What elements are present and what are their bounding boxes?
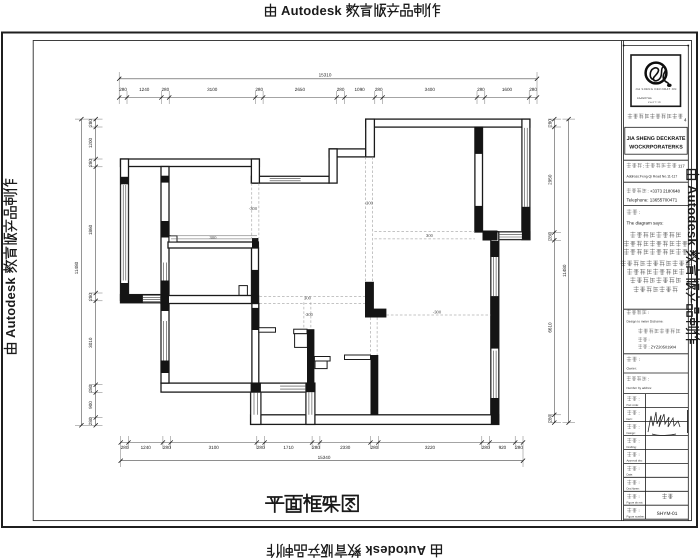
svg-text:920: 920 (499, 445, 507, 450)
svg-text:280: 280 (529, 87, 537, 92)
svg-text:Number by addres:: Number by addres: (627, 386, 653, 390)
svg-text::: : (639, 466, 640, 471)
svg-text:280: 280 (161, 87, 169, 92)
svg-text:300: 300 (304, 296, 312, 301)
svg-text::: : (639, 357, 640, 362)
svg-text::: : (648, 310, 649, 315)
svg-text:-300: -300 (305, 312, 314, 317)
svg-text:117: 117 (678, 163, 685, 168)
svg-text::: : (643, 163, 644, 168)
svg-text:280: 280 (121, 445, 129, 450)
svg-text:Design:: Design: (627, 432, 636, 435)
svg-text::: : (639, 210, 640, 215)
svg-text::: : (639, 480, 640, 485)
svg-text:280: 280 (515, 445, 523, 450)
svg-text:300: 300 (426, 233, 434, 238)
svg-text:1600: 1600 (502, 87, 513, 92)
svg-text:Figure do not:: Figure do not: (627, 502, 644, 505)
svg-text:280: 280 (257, 445, 265, 450)
svg-text:15340: 15340 (318, 455, 331, 460)
svg-text::: : (649, 337, 650, 342)
svg-text:The diagram says:: The diagram says: (627, 220, 664, 225)
svg-text:280: 280 (312, 445, 320, 450)
svg-text:Autodesk: Autodesk (365, 543, 426, 558)
svg-text:Autodesk: Autodesk (3, 277, 18, 338)
svg-text:-300: -300 (249, 206, 258, 211)
svg-text:Autodesk: Autodesk (281, 3, 342, 18)
svg-text:280: 280 (548, 414, 553, 422)
svg-text:3220: 3220 (425, 445, 436, 450)
svg-text:Owner:: Owner: (627, 367, 637, 371)
svg-text:Part code:: Part code: (627, 404, 640, 407)
svg-text:-300: -300 (433, 310, 442, 315)
svg-text:280: 280 (119, 87, 127, 92)
svg-text::: : (648, 376, 649, 381)
svg-text:280: 280 (548, 119, 553, 127)
svg-text:300: 300 (210, 235, 218, 240)
svg-text:JIA SHENG DECORAT ON: JIA SHENG DECORAT ON (635, 88, 676, 91)
svg-text:: +3373 2180648: : +3373 2180648 (648, 188, 681, 193)
svg-text:280: 280 (88, 159, 93, 167)
svg-text:Figure number:: Figure number: (627, 516, 645, 519)
svg-text:280: 280 (477, 87, 485, 92)
svg-text::: : (639, 494, 640, 499)
svg-text:3100: 3100 (209, 445, 220, 450)
svg-text:KAANOTWE: KAANOTWE (637, 97, 652, 100)
svg-text:1240: 1240 (139, 87, 150, 92)
svg-text:2950: 2950 (548, 174, 553, 185)
svg-text::: : (639, 410, 640, 415)
svg-text:Dra.Name:: Dra.Name: (627, 488, 640, 491)
svg-text:11480: 11480 (74, 261, 79, 274)
svg-text:280: 280 (255, 87, 263, 92)
svg-text:: ZYZ20501904: : ZYZ20501904 (649, 344, 677, 349)
svg-text:280: 280 (548, 232, 553, 240)
svg-text:4: 4 (684, 118, 687, 123)
svg-text:Design to meter Dichame:: Design to meter Dichame: (627, 320, 664, 324)
svg-text:Drafting:: Drafting: (627, 446, 637, 449)
svg-text:1860: 1860 (88, 224, 93, 235)
svg-text:Approval dra:: Approval dra: (627, 460, 643, 463)
svg-text:280: 280 (88, 384, 93, 392)
svg-text:280: 280 (163, 445, 171, 450)
svg-text:280: 280 (375, 87, 383, 92)
svg-text:280: 280 (371, 445, 379, 450)
svg-text:2 a 2 ? ! i.b: 2 a 2 ? ! i.b (648, 101, 661, 104)
svg-text:11480: 11480 (562, 264, 567, 277)
svg-text:2650: 2650 (295, 87, 306, 92)
svg-text:Autodesk: Autodesk (685, 185, 700, 246)
svg-text:JIA SHENG DECKRATE: JIA SHENG DECKRATE (627, 136, 686, 142)
svg-text:280: 280 (88, 417, 93, 425)
svg-text:Date:: Date: (627, 474, 634, 477)
svg-text:280: 280 (88, 119, 93, 127)
svg-text:900: 900 (88, 401, 93, 409)
svg-text::: : (639, 396, 640, 401)
svg-text:1090: 1090 (354, 87, 365, 92)
svg-text:6610: 6610 (548, 322, 553, 333)
svg-text:15310: 15310 (319, 73, 332, 78)
svg-text:1710: 1710 (283, 445, 294, 450)
svg-text:Address:Feng Qi Road No.11-117: Address:Feng Qi Road No.11-117 (627, 175, 678, 179)
svg-text:280: 280 (88, 293, 93, 301)
svg-text:Item:: Item: (627, 418, 633, 421)
svg-text:3400: 3400 (425, 87, 436, 92)
svg-text:280: 280 (337, 87, 345, 92)
svg-text::: : (639, 438, 640, 443)
svg-text::: : (639, 424, 640, 429)
svg-text:3010: 3010 (88, 337, 93, 348)
svg-text::: : (639, 452, 640, 457)
svg-text:Telephone: 13655700471: Telephone: 13655700471 (627, 197, 678, 202)
svg-text::: : (639, 508, 640, 513)
svg-text:2330: 2330 (340, 445, 351, 450)
svg-text:WOCKRPORATERKS: WOCKRPORATERKS (629, 145, 683, 151)
svg-text:1240: 1240 (141, 445, 152, 450)
svg-text:3100: 3100 (207, 87, 218, 92)
svg-text:1200: 1200 (88, 137, 93, 148)
svg-text:-300: -300 (365, 201, 374, 206)
svg-text:280: 280 (482, 445, 490, 450)
svg-text:SHYM-01: SHYM-01 (657, 511, 678, 517)
